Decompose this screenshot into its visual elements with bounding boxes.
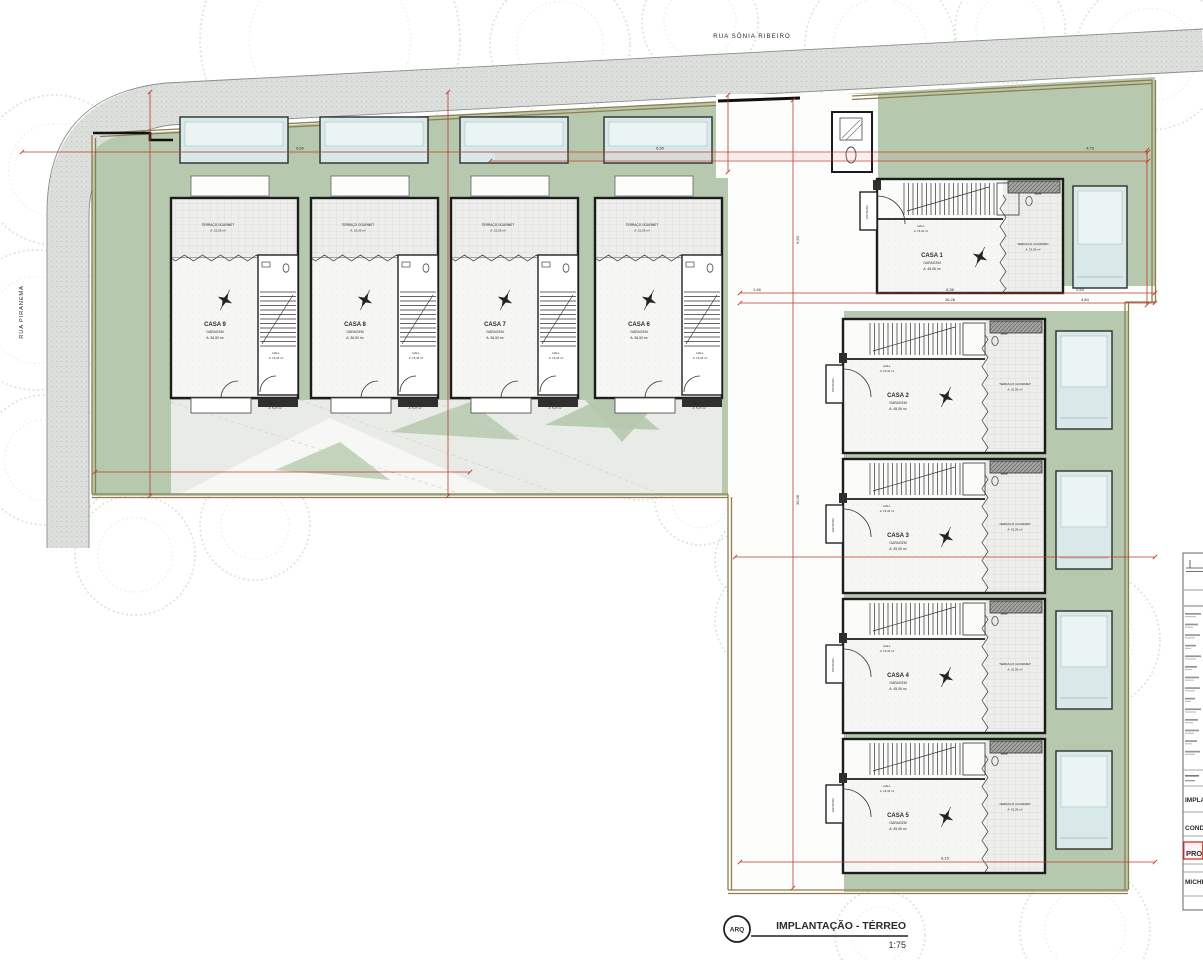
garagem-label: GARAGEM — [206, 330, 224, 334]
garagem-area: A: 36,50 m² — [206, 336, 224, 340]
title-block-project-fragment: COND — [1185, 825, 1203, 832]
terraco-label: TERRAÇO GOURMET — [342, 223, 375, 227]
entrada-label: ENTRADA — [268, 401, 282, 405]
dim-label: 6,50 — [795, 235, 800, 244]
hall-label: HALL — [883, 784, 891, 788]
terraco-area: A: 32,09 m² — [1008, 808, 1023, 812]
entrada-label: ENTRADA — [865, 205, 869, 219]
hall-label: HALL — [917, 224, 925, 228]
pool-casa-3 — [1056, 471, 1112, 569]
dim-label: 35,06 — [795, 494, 800, 505]
entrada-label: ENTRADA — [831, 378, 835, 392]
house-name: CASA 9 — [204, 322, 226, 328]
terraco-label: TERRAÇO GOURMET — [999, 522, 1031, 526]
hall-area: A: 15,34 m² — [914, 229, 929, 233]
garagem-area: A: 36,50 m² — [486, 336, 504, 340]
title-block-stamp-fragment: PRO — [1186, 849, 1202, 858]
garagem-label: GARAGEM — [889, 401, 907, 405]
pool-casa-4 — [1056, 611, 1112, 709]
pool-casa-9 — [180, 117, 288, 163]
entrada-label: ENTRADA — [831, 798, 835, 812]
entrada-area: A: 5,17 m² — [269, 406, 282, 410]
site-plan-drawing: TERRAÇO GOURMETA: 32,09 m²CASA 9GARAGEMA… — [0, 0, 1203, 960]
street-name-left: RUA PIRANEMA — [19, 285, 25, 338]
dim-label: 6,50 — [296, 146, 305, 151]
terraco-label: TERRAÇO GOURMET — [482, 223, 515, 227]
dim-label: 4,84 — [1081, 297, 1090, 302]
hall-label: HALL — [883, 644, 891, 648]
house-name: CASA 3 — [887, 533, 909, 539]
house-casa-1: CASA 1GARAGEMA: 45,06 m²HALLA: 15,34 m²T… — [860, 179, 1063, 293]
garagem-label: GARAGEM — [889, 541, 907, 545]
house-casa-2: CASA 2GARAGEMA: 45,06 m²HALLA: 15,34 m²T… — [826, 319, 1045, 453]
garagem-area: A: 45,06 m² — [923, 267, 941, 271]
dim-label: 16,28 — [945, 297, 956, 302]
garagem-area: A: 45,06 m² — [889, 547, 907, 551]
terraco-area: A: 32,09 m² — [210, 229, 226, 233]
hall-label: HALL — [883, 364, 891, 368]
terraco-area: A: 32,09 m² — [350, 229, 366, 233]
dim-label: 2,54 — [1076, 287, 1085, 292]
terraco-label: TERRAÇO GOURMET — [202, 223, 235, 227]
hall-label: HALL — [552, 351, 560, 355]
house-name: CASA 2 — [887, 393, 909, 399]
title-block-author-fragment: MICHE — [1185, 879, 1203, 886]
hall-label: HALL — [412, 351, 420, 355]
hall-label: HALL — [696, 351, 704, 355]
dim-label: 6,50 — [656, 146, 665, 151]
terraco-area: A: 32,09 m² — [634, 229, 650, 233]
house-name: CASA 4 — [887, 673, 909, 679]
entrada-area: A: 5,17 m² — [549, 406, 562, 410]
garagem-label: GARAGEM — [923, 261, 941, 265]
entrada-label: ENTRADA — [692, 401, 706, 405]
terraco-label: TERRAÇO GOURMET — [999, 662, 1031, 666]
terraco-label: TERRAÇO GOURMET — [999, 382, 1031, 386]
garagem-label: GARAGEM — [486, 330, 504, 334]
terraco-label: TERRAÇO GOURMET — [1017, 242, 1049, 246]
hall-area: A: 15,34 m² — [409, 356, 424, 360]
garagem-label: GARAGEM — [346, 330, 364, 334]
hall-area: A: 15,34 m² — [549, 356, 564, 360]
garagem-area: A: 36,50 m² — [630, 336, 648, 340]
entrada-label: ENTRADA — [408, 401, 422, 405]
garagem-label: GARAGEM — [889, 821, 907, 825]
pool-casa-8 — [320, 117, 428, 163]
dim-label: 1,46 — [753, 287, 762, 292]
garagem-area: A: 36,50 m² — [346, 336, 364, 340]
house-name: CASA 5 — [887, 813, 909, 819]
garagem-area: A: 45,06 m² — [889, 407, 907, 411]
entrada-label: ENTRADA — [831, 658, 835, 672]
dim-label: 6,15 — [941, 856, 950, 861]
entrada-area: A: 5,17 m² — [693, 406, 706, 410]
hall-area: A: 15,34 m² — [880, 649, 895, 653]
dim-label: 4,75 — [1086, 146, 1095, 151]
terraco-label: TERRAÇO GOURMET — [999, 802, 1031, 806]
drawing-title-text: IMPLANTAÇÃO - TÉRREO — [776, 919, 906, 932]
terraco-area: A: 32,09 m² — [1008, 388, 1023, 392]
drawing-scale: 1:75 — [888, 940, 906, 950]
entrada-area: A: 5,17 m² — [409, 406, 422, 410]
house-name: CASA 1 — [921, 253, 943, 259]
house-casa-5: CASA 5GARAGEMA: 45,06 m²HALLA: 15,34 m²T… — [826, 739, 1045, 873]
title-block-sheet-fragment: IMPLA — [1185, 797, 1203, 804]
garagem-area: A: 45,06 m² — [889, 687, 907, 691]
terraco-area: A: 32,09 m² — [1026, 248, 1041, 252]
hall-area: A: 15,34 m² — [269, 356, 284, 360]
terraco-area: A: 32,09 m² — [490, 229, 506, 233]
hall-area: A: 15,34 m² — [880, 369, 895, 373]
house-casa-8: TERRAÇO GOURMETA: 32,09 m²CASA 8GARAGEMA… — [311, 117, 438, 413]
terraco-area: A: 32,09 m² — [1008, 668, 1023, 672]
entrada-label: ENTRADA — [548, 401, 562, 405]
hall-label: HALL — [272, 351, 280, 355]
hall-area: A: 15,34 m² — [880, 789, 895, 793]
house-name: CASA 6 — [628, 322, 650, 328]
drawing-title: ARQ IMPLANTAÇÃO - TÉRREO 1:75 — [724, 916, 908, 950]
hall-area: A: 15,34 m² — [693, 356, 708, 360]
terraco-label: TERRAÇO GOURMET — [626, 223, 659, 227]
garagem-label: GARAGEM — [630, 330, 648, 334]
house-casa-3: CASA 3GARAGEMA: 45,06 m²HALLA: 15,34 m²T… — [826, 459, 1045, 593]
discipline-label: ARQ — [730, 927, 744, 934]
street-name-top: RUA SÔNIA RIBEIRO — [713, 33, 791, 40]
pool-casa-2 — [1056, 331, 1112, 429]
house-name: CASA 7 — [484, 322, 506, 328]
house-casa-4: CASA 4GARAGEMA: 45,06 m²HALLA: 15,34 m²T… — [826, 599, 1045, 733]
pool-casa-5 — [1056, 751, 1112, 849]
gate-house — [832, 112, 872, 172]
garagem-label: GARAGEM — [889, 681, 907, 685]
dim-label: 6,36 — [946, 287, 955, 292]
hall-area: A: 15,34 m² — [880, 509, 895, 513]
hall-label: HALL — [883, 504, 891, 508]
entrada-label: ENTRADA — [831, 518, 835, 532]
house-casa-9: TERRAÇO GOURMETA: 32,09 m²CASA 9GARAGEMA… — [171, 117, 298, 413]
house-name: CASA 8 — [344, 322, 366, 328]
garagem-area: A: 45,06 m² — [889, 827, 907, 831]
pool-casa-1 — [1073, 186, 1127, 288]
site-plan-sheet: TERRAÇO GOURMETA: 32,09 m²CASA 9GARAGEMA… — [0, 0, 1203, 960]
terraco-area: A: 32,09 m² — [1008, 528, 1023, 532]
